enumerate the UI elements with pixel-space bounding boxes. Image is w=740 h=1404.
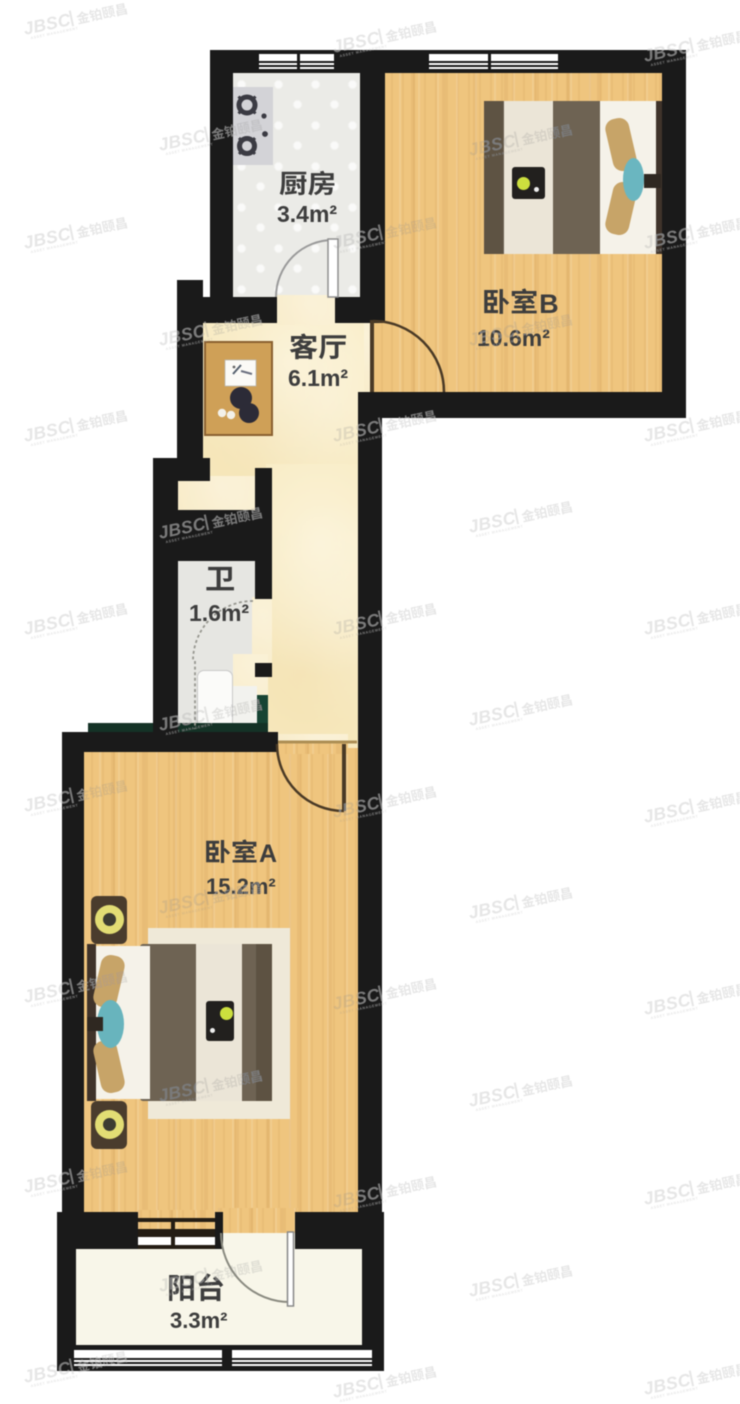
svg-text:A: A xyxy=(259,840,277,868)
